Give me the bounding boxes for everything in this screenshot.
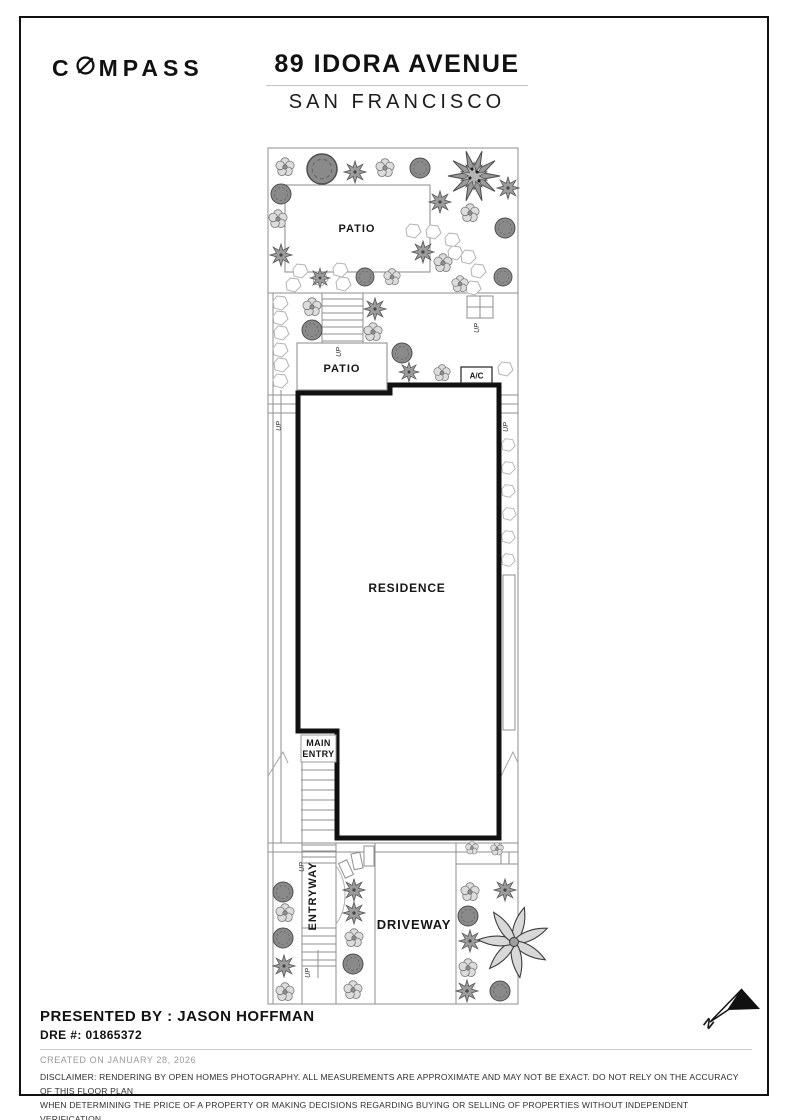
plant-icon [270,244,292,266]
up-label: UP [474,323,481,333]
plant-icon [345,929,363,947]
plant-icon [494,879,516,901]
plant-icon [434,365,450,381]
main-entry-label-line2: ENTRY [302,749,334,759]
main-entry-label-line1: MAIN [306,738,331,748]
ac-unit: A/C [461,367,492,383]
stone-icon [293,264,308,278]
plant-icon [344,981,362,999]
plant-icon [461,883,479,901]
plant-icon [343,879,365,901]
residence-label: RESIDENCE [368,581,445,595]
bins [339,846,374,878]
plant-icon [392,343,412,363]
stone-icon [273,343,288,357]
stone-icon [333,263,348,277]
site-plan: A/C MAIN ENTRY [0,0,792,1120]
stone-icon [286,278,301,292]
disclaimer-line-1: DISCLAIMER: RENDERING BY OPEN HOMES PHOT… [40,1070,752,1098]
plant-icon [276,158,294,176]
plant-icon [276,983,294,1001]
plant-icon [458,906,478,926]
footer-divider [40,1049,752,1050]
plant-icon [269,210,287,228]
disclaimer-line-2: WHEN DETERMINING THE PRICE OF A PROPERTY… [40,1098,752,1120]
footer: PRESENTED BY : JASON HOFFMAN DRE #: 0186… [40,1008,752,1120]
plant-icon [273,955,295,977]
patio-mid-label: PATIO [324,363,361,375]
plant-icon [273,882,293,902]
driveway-label: DRIVEWAY [377,917,452,932]
stone-icon [502,531,516,544]
plant-icon [399,362,419,382]
stone-icon [471,264,486,278]
leafy-plant-icon [470,898,558,985]
patio-top-label: PATIO [339,223,376,235]
stone-icon [274,358,289,372]
up-label: UP [299,862,306,872]
plant-icon [364,298,386,320]
plant-icon [303,298,321,316]
ac-label: A/C [470,372,484,381]
stone-icon [273,296,288,310]
stone-icon [503,508,517,521]
stone-icon [426,225,441,239]
disclaimer-text: DISCLAIMER: RENDERING BY OPEN HOMES PHOT… [40,1070,752,1120]
stone-icon [445,233,460,247]
entryway-label: ENTRYWAY [307,862,319,931]
plant-icon [497,177,519,199]
created-date: CREATED ON JANUARY 28, 2026 [40,1055,752,1065]
stone-icon [502,554,516,567]
plant-icon [459,959,477,977]
stone-icon [502,485,516,498]
main-entry: MAIN ENTRY [301,735,336,762]
up-label: UP [503,422,510,432]
presented-by-text: PRESENTED BY : JASON HOFFMAN [40,1008,752,1025]
plant-icon [452,276,468,292]
plant-icon [302,320,322,340]
stone-icon [273,374,288,388]
plant-icon [273,928,293,948]
plant-icon [495,218,515,238]
stone-icon [502,439,516,452]
stone-icon [461,250,476,264]
plant-icon [276,904,294,922]
plant-icon [356,268,374,286]
plant-icon [364,323,382,341]
plant-icon [412,241,434,263]
stone-icon [502,462,516,475]
stone-icon [498,362,513,376]
plant-icon [307,154,337,184]
plant-icon [461,204,479,222]
plant-icon [456,980,478,1002]
stone-icon [336,277,351,291]
stone-icon [274,326,289,340]
plant-icon [310,268,330,288]
plant-icon [410,158,430,178]
up-label: UP [336,347,343,357]
plant-icon [344,161,366,183]
plant-icon [429,191,451,213]
plant-icon [376,159,394,177]
dre-number: DRE #: 01865372 [40,1028,752,1042]
plant-icon [343,954,363,974]
stone-icon [273,311,288,325]
plant-icon [459,930,481,952]
plant-icon [490,981,510,1001]
plant-icon [343,902,365,924]
floor-plan-page: C MPASS 89 IDORA AVENUE SAN FRANCISCO [0,0,792,1120]
up-label: UP [276,421,283,431]
up-label: UP [305,968,312,978]
plant-icon [494,268,512,286]
plant-icon [271,184,291,204]
agave-plant-icon [448,151,500,200]
